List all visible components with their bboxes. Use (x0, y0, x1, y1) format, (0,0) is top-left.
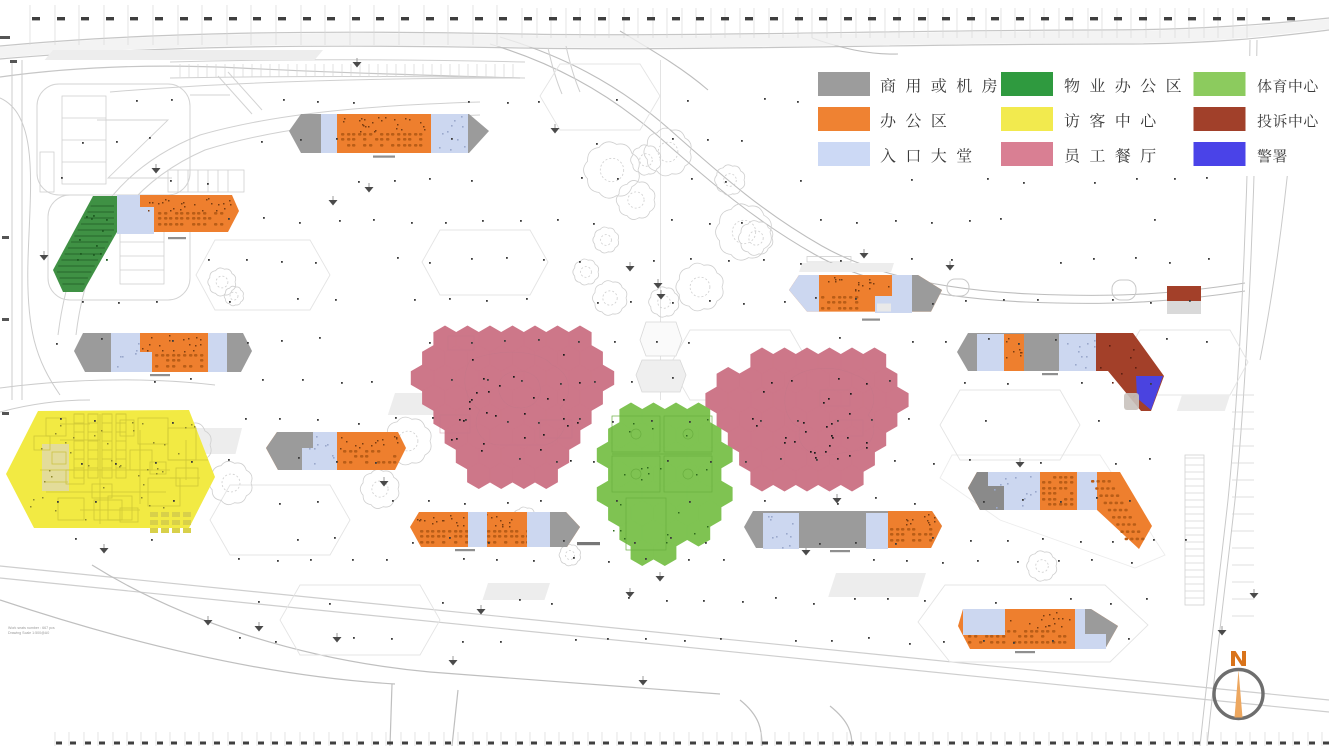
svg-text:Work seats number : 667 pcs: Work seats number : 667 pcs (8, 626, 55, 630)
svg-text:Drawing Scale 1:500@A0: Drawing Scale 1:500@A0 (8, 631, 49, 635)
